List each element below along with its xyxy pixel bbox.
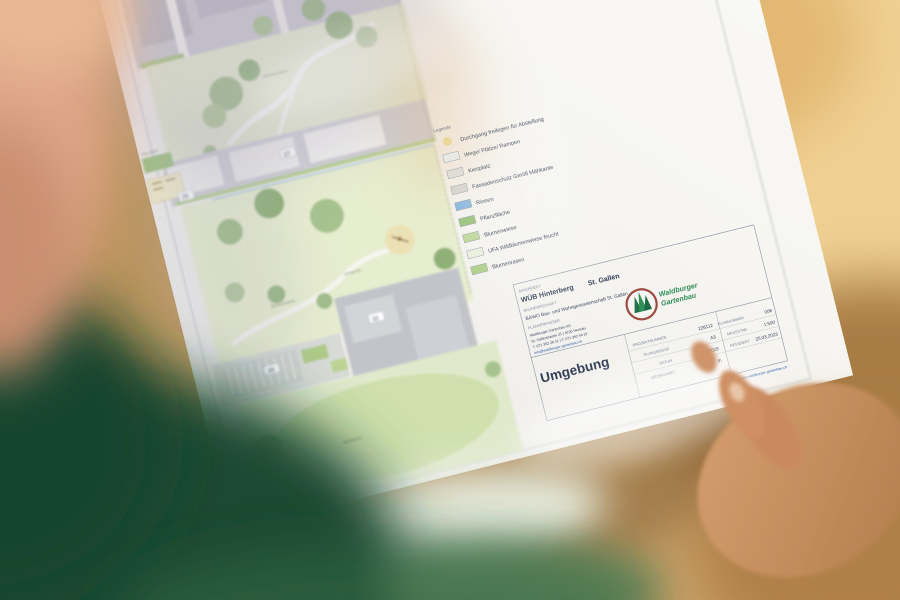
photo-of-person-holding-site-plan: Blumenwiese Pflanzfläche 25 27 bbox=[0, 0, 900, 600]
